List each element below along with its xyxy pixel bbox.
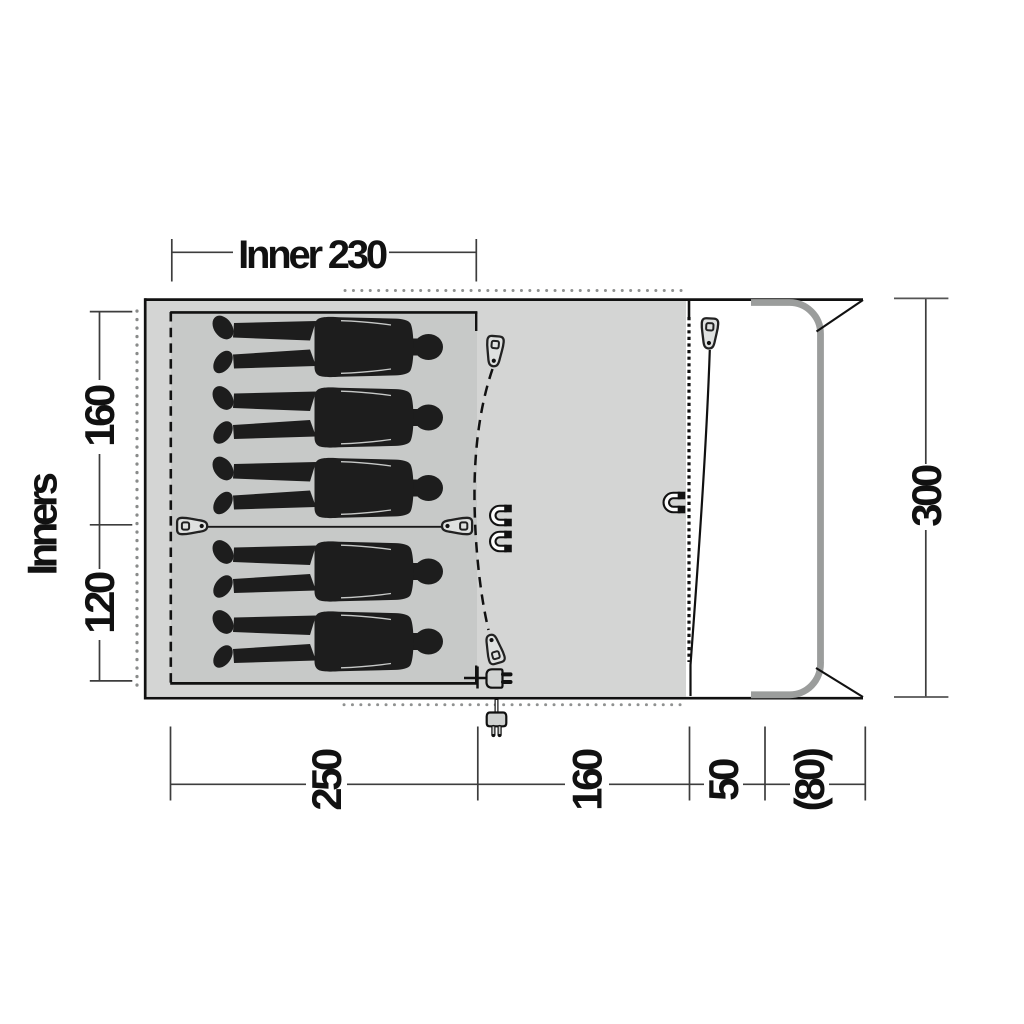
svg-text:Inner 230: Inner 230 [238,233,387,277]
svg-text:Inners: Inners [19,473,66,575]
svg-text:(80): (80) [786,749,833,811]
svg-text:160: 160 [76,385,123,447]
svg-text:250: 250 [303,749,350,811]
svg-text:160: 160 [564,749,611,811]
svg-text:50: 50 [700,759,747,801]
svg-text:120: 120 [76,572,123,634]
svg-text:300: 300 [903,465,950,527]
